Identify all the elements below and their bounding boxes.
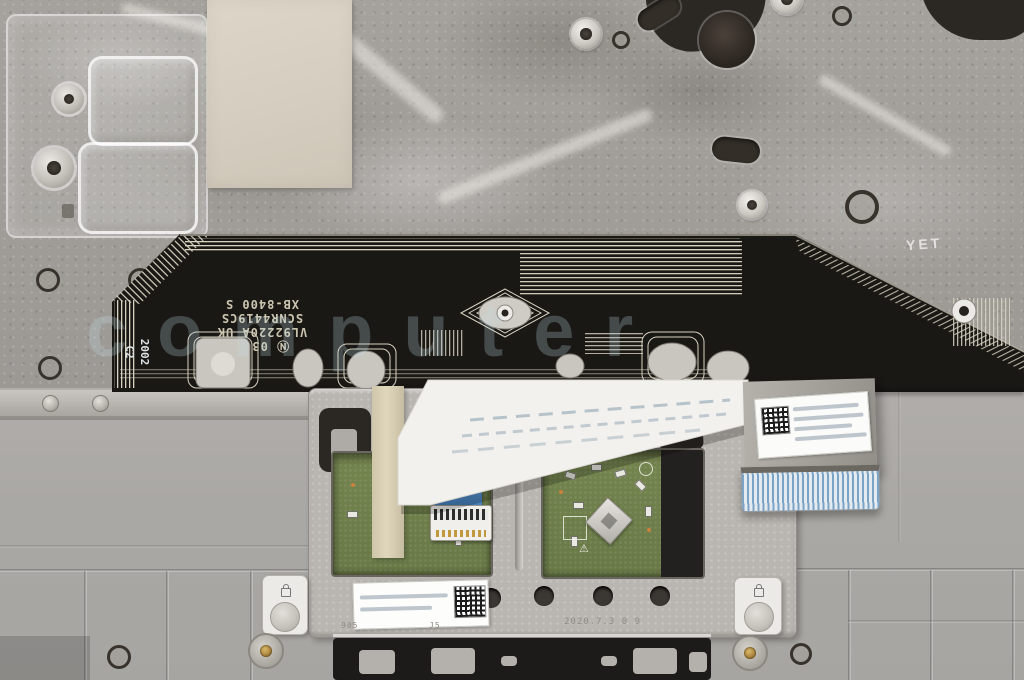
membrane-part-no: SCNR4419CS [221,311,303,325]
lock-icon [281,588,291,597]
date-stamp: 2020.7.3 0 9 [564,617,641,627]
mold-mark [62,204,74,218]
plate-hole-small [612,31,630,49]
keyboard-cable-label [754,391,872,459]
plate-hole-large [699,12,755,68]
molded-rib [848,620,1024,623]
bracket-mark: J5 [429,621,441,630]
screw [571,19,601,49]
keyboard-membrane-flex: Ⓝ 03 ∫ VL92220A UK SCNR4419CS XB-8400 S … [95,225,1024,400]
photo-laptop-palmrest-internal: YET [0,0,1024,680]
molded-rib [788,568,1024,571]
plastic-hole [790,643,812,665]
cable-connector-fingers [741,465,881,512]
molded-rib [898,392,901,542]
brass-screw-boss [732,635,768,671]
screw [34,148,74,188]
bracket-screw-hole [650,586,670,606]
corner-shadow [0,636,90,680]
plastic-hole [107,645,131,669]
plate-hole-ring [38,356,62,380]
screw [738,191,766,219]
screw-boss [270,602,300,632]
lock-bracket-left [262,575,308,635]
bracket-screw-hole [593,586,613,606]
plate-hole-ring [36,268,60,292]
touchpad-clip-strip [333,638,711,680]
membrane-part-no: XB-8400 S [225,297,299,311]
plate-hole-ring [845,190,879,224]
serial-label [352,579,489,630]
lock-icon [754,588,764,597]
bracket-mark: 905 [341,621,358,630]
lock-bracket-right [734,577,782,635]
molded-rib [166,571,169,680]
film-dome [88,56,198,146]
rivet [42,395,59,412]
qr-code-icon [454,585,487,618]
bracket-screw-hole [534,586,554,606]
screw-boss [744,602,774,632]
molded-rib [0,545,332,548]
white-flex-cable [390,378,760,515]
membrane-side-mark: C2 [123,345,136,358]
molded-rib [1012,570,1015,680]
zif-solder-pads [436,530,486,537]
plate-hole-small [832,6,852,26]
molded-rib [930,570,933,680]
warning-triangle-icon: ⚠ [579,542,589,555]
qr-code-icon [761,406,791,436]
molded-rib [848,570,851,680]
bracket-edge-highlight [333,634,711,637]
clear-dome-film [6,14,208,238]
membrane-cert-mark: Ⓝ 03 ∫ [235,339,289,354]
brass-screw-boss [248,633,284,669]
kapton-sticker [207,0,352,188]
screw [54,84,84,114]
membrane-side-mark: 2002 [138,339,151,366]
film-dome [78,142,198,234]
membrane-part-no: VL92220A UK [217,325,307,339]
